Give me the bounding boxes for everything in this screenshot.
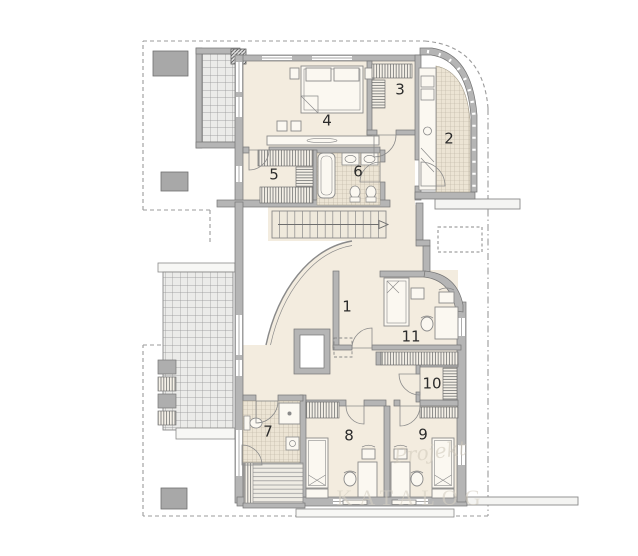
room-label-1: 1 [342, 300, 352, 315]
room-label-5: 5 [269, 168, 279, 183]
floor-plan-page: 1 2 3 4 5 6 7 8 9 10 11 Projekt KATALOG [0, 0, 638, 556]
balcony-bottom-left [244, 463, 303, 503]
room-label-11: 11 [401, 330, 420, 345]
staircase [272, 211, 388, 238]
floor-plan-drawing [0, 0, 638, 556]
room-label-3: 3 [395, 83, 405, 98]
room-label-2: 2 [444, 132, 454, 147]
room-label-10: 10 [422, 377, 441, 392]
roof-window-dashed [438, 227, 482, 252]
room-6-bathroom [317, 153, 380, 205]
room-2-conservatory [419, 48, 477, 192]
room-label-8: 8 [344, 429, 354, 444]
room-label-6: 6 [353, 165, 363, 180]
balcony-left [158, 263, 235, 439]
watermark-caps: KATALOG [336, 485, 487, 511]
room-label-7: 7 [263, 425, 273, 440]
room-label-4: 4 [322, 114, 332, 129]
